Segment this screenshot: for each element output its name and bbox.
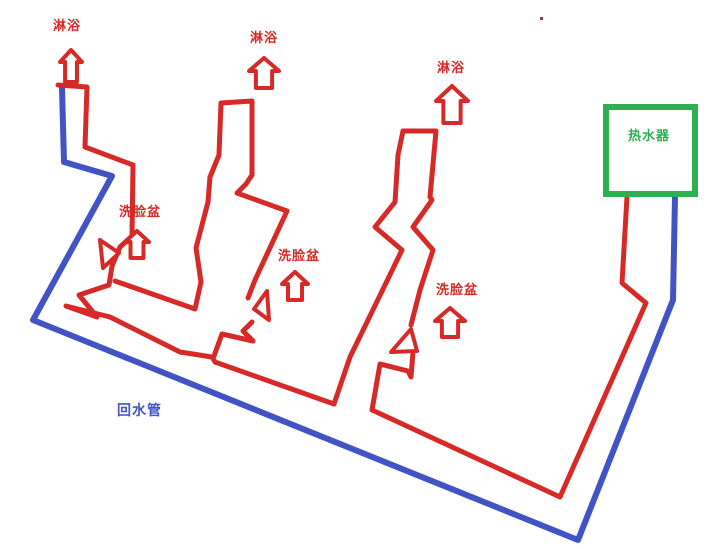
shower-label-2: 淋浴 (250, 32, 278, 46)
shower2-flow-arrow (249, 58, 279, 88)
shower1-flow-arrow (60, 50, 82, 82)
basin2-valve (254, 291, 269, 320)
hot-pipe-group2-loop (196, 101, 287, 298)
paint-canvas: 淋浴 淋浴 淋浴 洗脸盆 洗脸盆 洗脸盆 热水器 回水管 (0, 0, 718, 549)
pipe-diagram (0, 0, 718, 549)
water-heater-label: 热水器 (628, 130, 670, 144)
stray-dot (540, 17, 543, 20)
water-heater-box (606, 107, 695, 194)
hot-pipe-basin1-link (115, 281, 201, 309)
basin1-flow-arrow (125, 231, 149, 258)
return-pipe-label: 回水管 (117, 404, 162, 419)
shower-label-3: 淋浴 (437, 62, 465, 76)
shower3-flow-arrow (436, 86, 468, 123)
shower-label-1: 淋浴 (53, 20, 81, 34)
basin-label-3: 洗脸盆 (436, 284, 478, 298)
basin3-flow-arrow (435, 308, 465, 337)
return-pipes-group (33, 88, 675, 540)
hot-pipe-basin2-drop (214, 322, 253, 356)
basin3-valve (391, 329, 417, 352)
basin-label-1: 洗脸盆 (119, 206, 161, 220)
hot-pipes-group (58, 85, 646, 497)
basin1-valve (100, 240, 119, 268)
return-pipe-main (33, 88, 675, 540)
basin2-flow-arrow (282, 272, 308, 300)
basin-label-2: 洗脸盆 (278, 250, 320, 264)
